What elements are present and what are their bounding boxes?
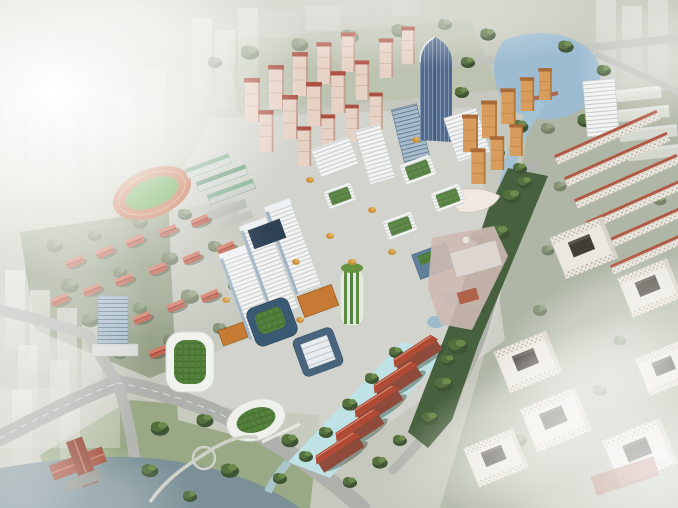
scene-canvas bbox=[0, 0, 678, 508]
mist-wisp-center-left bbox=[30, 180, 270, 340]
masterplan-rendering bbox=[0, 0, 678, 508]
curved-green-roof-building bbox=[166, 332, 214, 392]
plaza-feature bbox=[462, 236, 470, 244]
round-green-tower bbox=[340, 263, 364, 326]
